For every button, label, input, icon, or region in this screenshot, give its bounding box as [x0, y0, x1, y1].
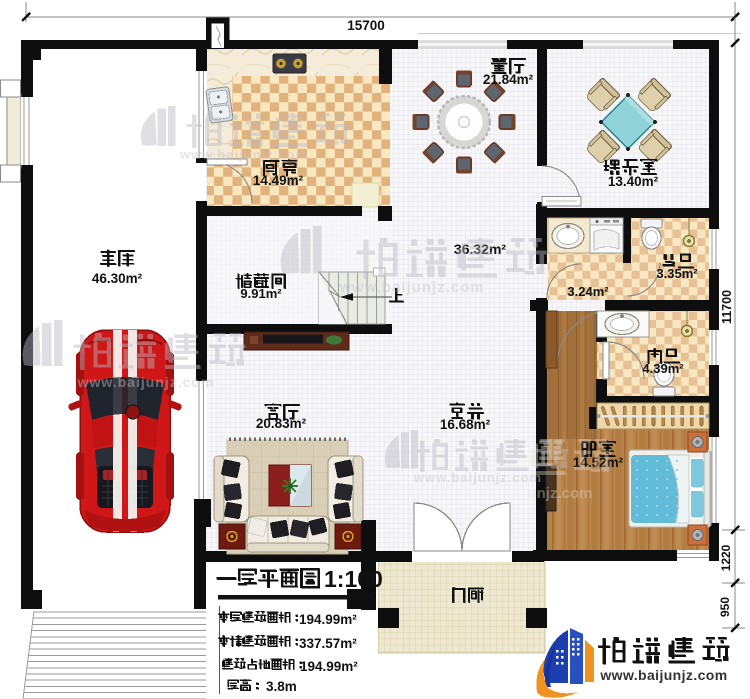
svg-text:3.8m: 3.8m [266, 679, 297, 694]
svg-text:9.91m²: 9.91m² [240, 286, 282, 301]
svg-text:unjz.com: unjz.com [527, 485, 592, 502]
svg-text:3.24m²: 3.24m² [567, 284, 609, 299]
svg-text:14.49m²: 14.49m² [253, 173, 304, 188]
svg-text:21.84m²: 21.84m² [483, 72, 534, 87]
svg-text:www.baijunjz.com: www.baijunjz.com [599, 667, 727, 683]
svg-text:1:100: 1:100 [324, 566, 383, 592]
svg-text:1220: 1220 [719, 544, 733, 571]
svg-text:194.99m²: 194.99m² [299, 612, 357, 627]
svg-text:www.baijunjz.com: www.baijunjz.com [338, 279, 484, 296]
svg-text:11700: 11700 [720, 290, 734, 324]
svg-text:950: 950 [718, 597, 732, 617]
svg-text:www.baijunjz.com: www.baijunjz.com [413, 470, 542, 485]
svg-text:www.baijunjz.com: www.baijunjz.com [77, 374, 215, 390]
svg-text:15700: 15700 [347, 18, 385, 33]
svg-text:194.99m²: 194.99m² [300, 659, 358, 674]
svg-text:46.30m²: 46.30m² [92, 271, 143, 286]
svg-text:337.57m²: 337.57m² [299, 636, 357, 651]
svg-text:4.39m²: 4.39m² [642, 361, 684, 376]
svg-text:www.baijunjz.com: www.baijunjz.com [179, 147, 308, 162]
svg-text:20.83m²: 20.83m² [256, 416, 307, 431]
svg-text:16.68m²: 16.68m² [440, 417, 491, 432]
svg-text:3.35m²: 3.35m² [656, 266, 698, 281]
svg-text:13.40m²: 13.40m² [608, 174, 659, 189]
